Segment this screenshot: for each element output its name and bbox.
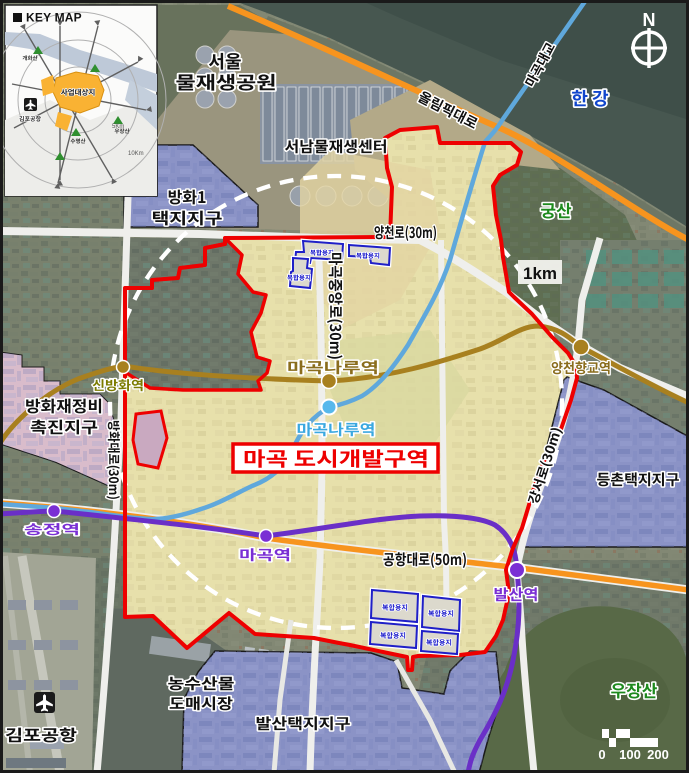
svg-text:10Km: 10Km [128, 151, 144, 157]
svg-text:0: 0 [598, 747, 605, 762]
svg-text:200: 200 [647, 747, 669, 762]
svg-text:100: 100 [619, 747, 641, 762]
svg-text:KEY MAP: KEY MAP [26, 11, 82, 25]
svg-text:5Km: 5Km [112, 124, 124, 130]
svg-text:1km: 1km [523, 264, 557, 283]
svg-text:N: N [643, 10, 656, 30]
